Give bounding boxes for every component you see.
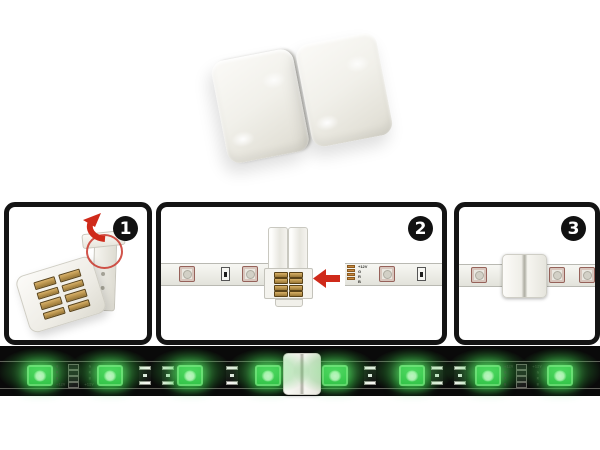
solder-pads	[347, 265, 355, 280]
connector-contact-body	[264, 268, 313, 299]
step-badge-3: 3	[561, 216, 586, 241]
step-panel-3: 3	[454, 202, 600, 345]
contact-pins	[33, 269, 90, 320]
copper-pad	[347, 269, 355, 272]
step-panel-2: 2 +12V G	[156, 202, 447, 345]
rotate-open-arrow-icon	[71, 211, 117, 243]
pad-label: G	[358, 270, 367, 273]
connector-closed-photo	[210, 31, 395, 165]
led-strip-left-piece	[161, 263, 268, 286]
connector-half-right	[294, 31, 395, 149]
instruction-sheet: 1 2	[0, 0, 600, 450]
copper-pad	[347, 265, 355, 268]
lid-hole	[101, 272, 105, 276]
pad-label: +12V	[358, 265, 367, 268]
resistor	[221, 267, 230, 281]
connector-half-left	[210, 47, 311, 165]
step-badge-1: 1	[113, 216, 138, 241]
green-glow	[370, 348, 454, 394]
connector-closed	[502, 254, 547, 298]
insert-arrow-icon	[313, 269, 340, 288]
step-panel-1: 1	[4, 202, 152, 345]
green-glow	[68, 348, 152, 394]
pad-labels: +12V G R B	[358, 264, 377, 284]
led-module	[379, 266, 395, 282]
led-module	[549, 267, 565, 283]
pad-label: R	[358, 275, 367, 278]
lit-strip-banner: GG RR BB +12V+12V +12V+12V GG RR BB	[0, 346, 600, 396]
connector-tab	[275, 299, 303, 307]
led-strip-right-piece: +12V G R B	[345, 263, 442, 286]
connector-lid-open	[268, 227, 288, 271]
green-glow	[518, 348, 600, 394]
green-glow	[293, 348, 377, 394]
product-photo-connector	[212, 34, 392, 164]
green-glow	[148, 348, 232, 394]
copper-pad	[347, 277, 355, 280]
led-module	[471, 267, 487, 283]
pad-label: B	[358, 280, 367, 283]
connector-lid-open	[288, 227, 308, 271]
led-module	[242, 266, 258, 282]
resistor	[417, 267, 426, 281]
led-module	[179, 266, 195, 282]
connector-base	[14, 255, 108, 335]
copper-pad	[347, 273, 355, 276]
led-module	[579, 267, 595, 283]
step-badge-2: 2	[408, 216, 433, 241]
